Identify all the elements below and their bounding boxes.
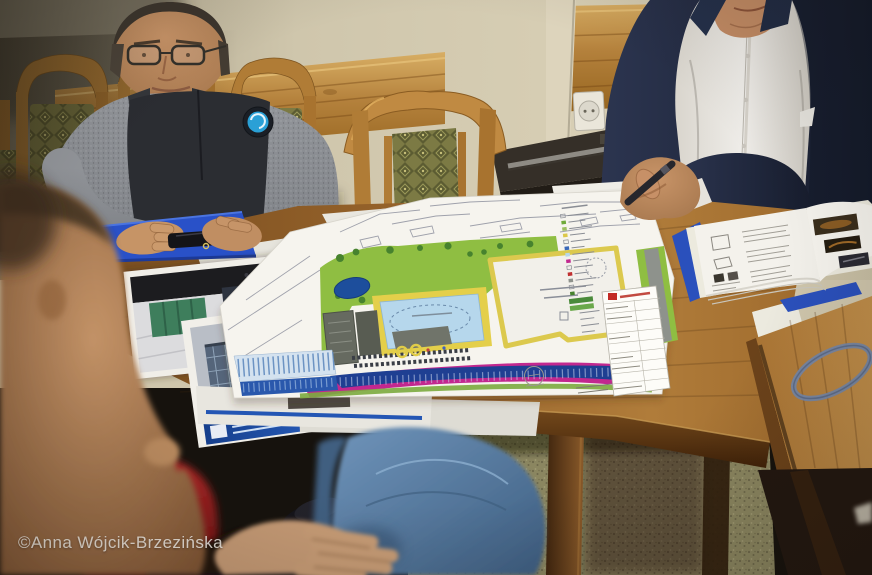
photograph-meeting-over-site-plan: ©Anna Wójcik-Brzezińska	[0, 0, 872, 575]
nose	[144, 438, 180, 466]
watermark: ©Anna Wójcik-Brzezińska	[18, 533, 223, 553]
table-leg-rear	[702, 450, 730, 575]
photo-canvas	[0, 0, 872, 575]
firm-logo	[608, 293, 617, 300]
fleece-logo-patch	[243, 107, 273, 137]
ear	[38, 280, 66, 320]
power-outlet	[573, 91, 605, 131]
